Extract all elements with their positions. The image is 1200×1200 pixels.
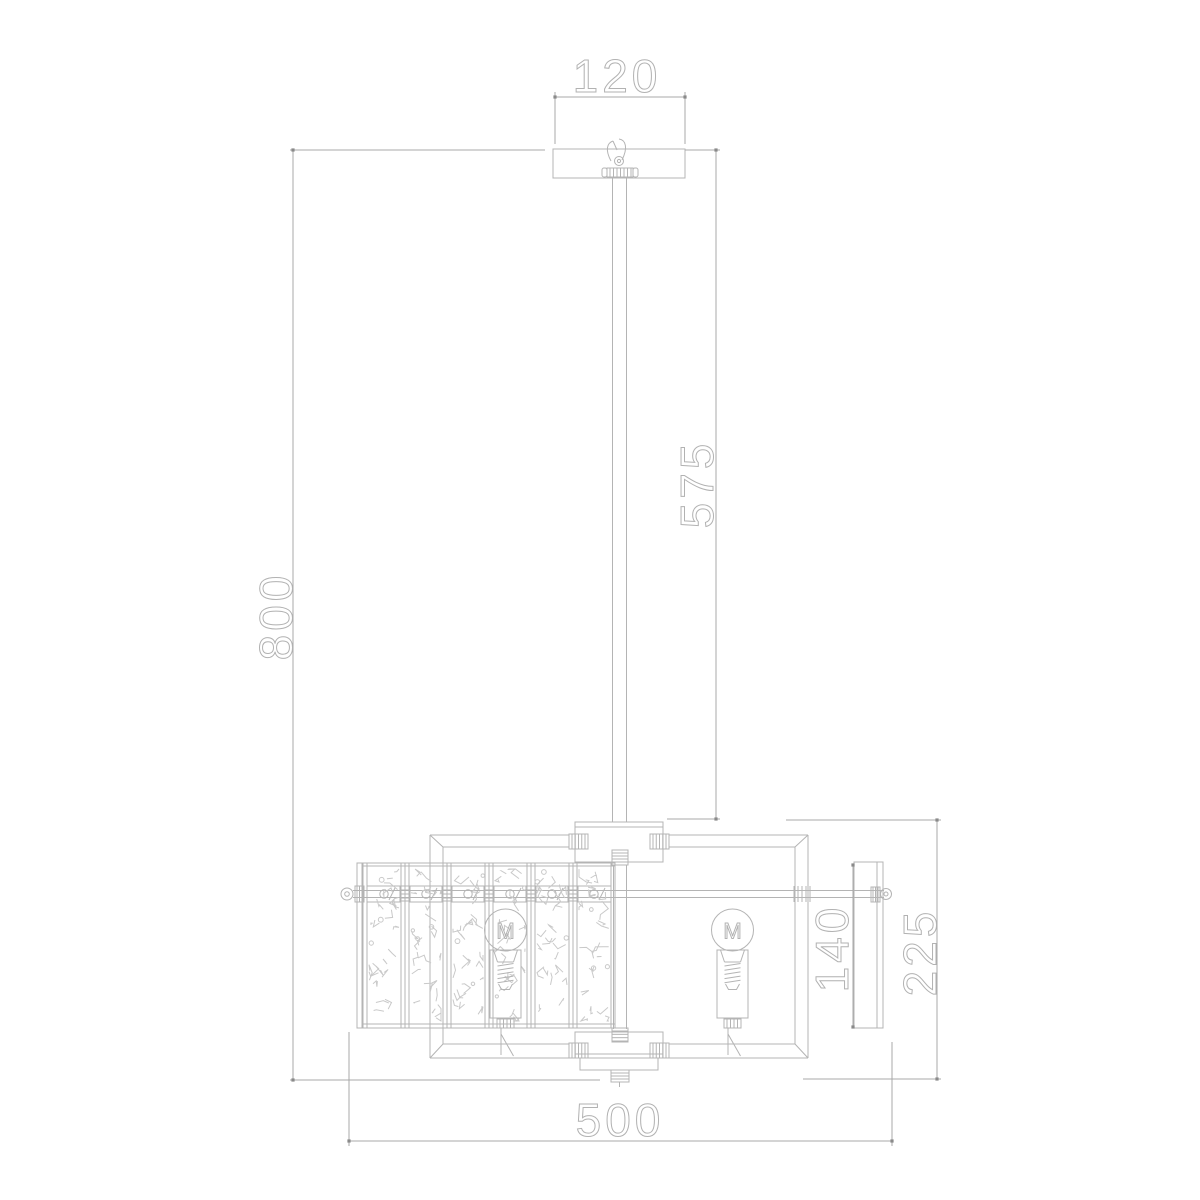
hanging-hook xyxy=(602,139,638,177)
crystal-panel xyxy=(531,863,573,1028)
crystal-panel xyxy=(573,863,615,1028)
ceiling-canopy xyxy=(553,139,685,178)
cad-drawing-canvas: 120 800 575 140 225 500 M M xyxy=(0,0,1200,1200)
crack-texture xyxy=(453,874,485,1014)
dimension-label-overall-drop: 800 xyxy=(250,572,302,661)
crystal-panel xyxy=(447,863,489,1028)
crack-texture xyxy=(495,869,527,1021)
crystal-panel xyxy=(489,863,531,1028)
bottom-hub xyxy=(569,1028,669,1087)
hanger-rod xyxy=(341,886,892,902)
dimension-label-canopy-width: 120 xyxy=(573,50,662,102)
crack-texture xyxy=(579,869,609,1021)
dimension-label-body-height: 225 xyxy=(894,908,946,997)
dimension-overall-drop xyxy=(290,148,600,1081)
bulb-filament-symbol-right: M xyxy=(723,919,741,944)
crystal-panel xyxy=(405,863,447,1028)
body-frame xyxy=(430,835,808,1058)
dimension-label-body-width: 500 xyxy=(576,1094,665,1146)
dimension-label-rod-length: 575 xyxy=(671,440,723,529)
dimension-label-panel-height: 140 xyxy=(806,904,858,993)
suspension-rod xyxy=(613,178,627,822)
top-hub xyxy=(569,822,669,865)
crystal-panels xyxy=(363,863,615,1028)
crystal-panel xyxy=(363,863,405,1028)
bulb-filament-symbol-left: M xyxy=(496,919,514,944)
crack-texture xyxy=(411,869,441,1021)
pendant-lamp-technical-drawing: 120 800 575 140 225 500 M M xyxy=(0,0,1200,1200)
